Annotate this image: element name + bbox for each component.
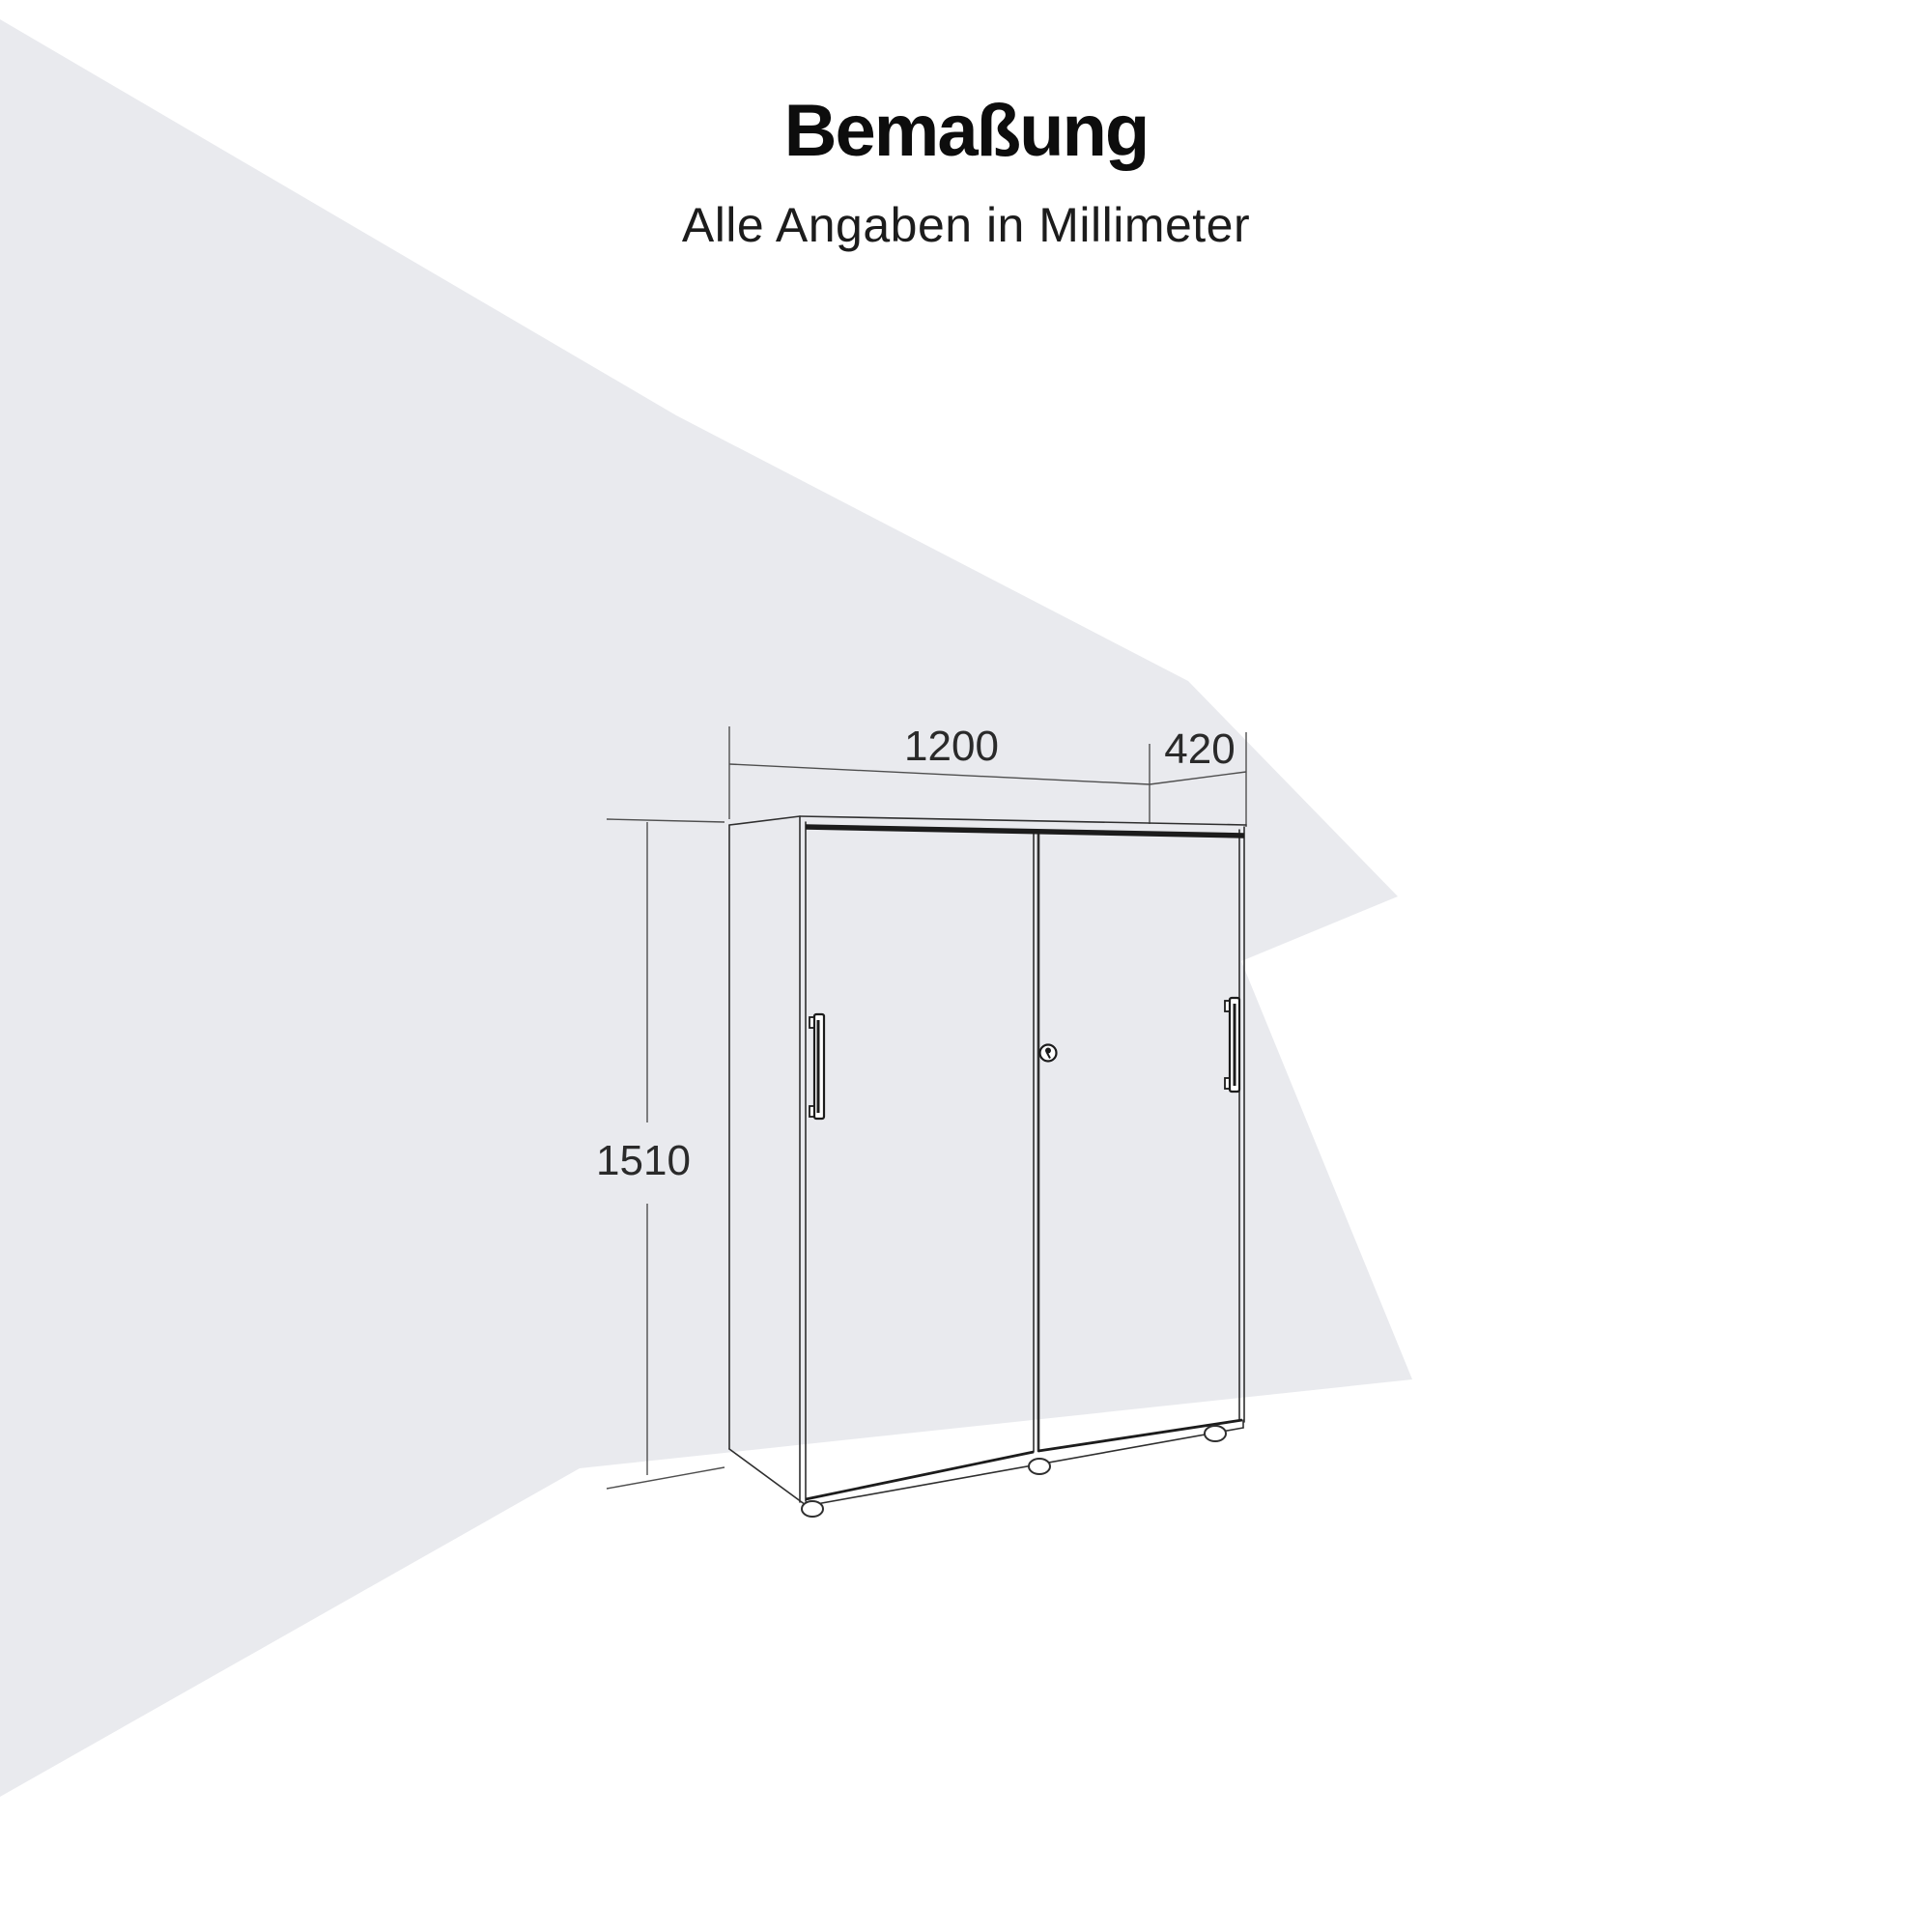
width-dimension-label: 1200 — [904, 725, 999, 768]
plinth-bottom-edge — [806, 1428, 1243, 1506]
cylinder-lock-icon — [1040, 1045, 1057, 1062]
dimension-diagram-page: Bemaßung Alle Angaben in Millimeter 1200… — [0, 0, 1932, 1932]
height-extension-line-bottom — [607, 1467, 724, 1489]
cabinet-feet — [802, 1426, 1226, 1517]
depth-dimension-label: 420 — [1164, 728, 1235, 771]
foot-right-icon — [1205, 1426, 1226, 1441]
height-dimension-label: 1510 — [596, 1140, 691, 1182]
page-title: Bemaßung — [784, 91, 1149, 172]
page-subtitle: Alle Angaben in Millimeter — [682, 199, 1250, 252]
foot-left-icon — [802, 1501, 823, 1517]
foot-middle-icon — [1029, 1459, 1050, 1474]
background-wedge-shape — [0, 19, 1412, 1797]
left-door-bottom-edge — [806, 1452, 1034, 1499]
dimension-drawing — [0, 0, 1932, 1932]
cabinet-bottom-left-slant — [729, 1449, 806, 1505]
